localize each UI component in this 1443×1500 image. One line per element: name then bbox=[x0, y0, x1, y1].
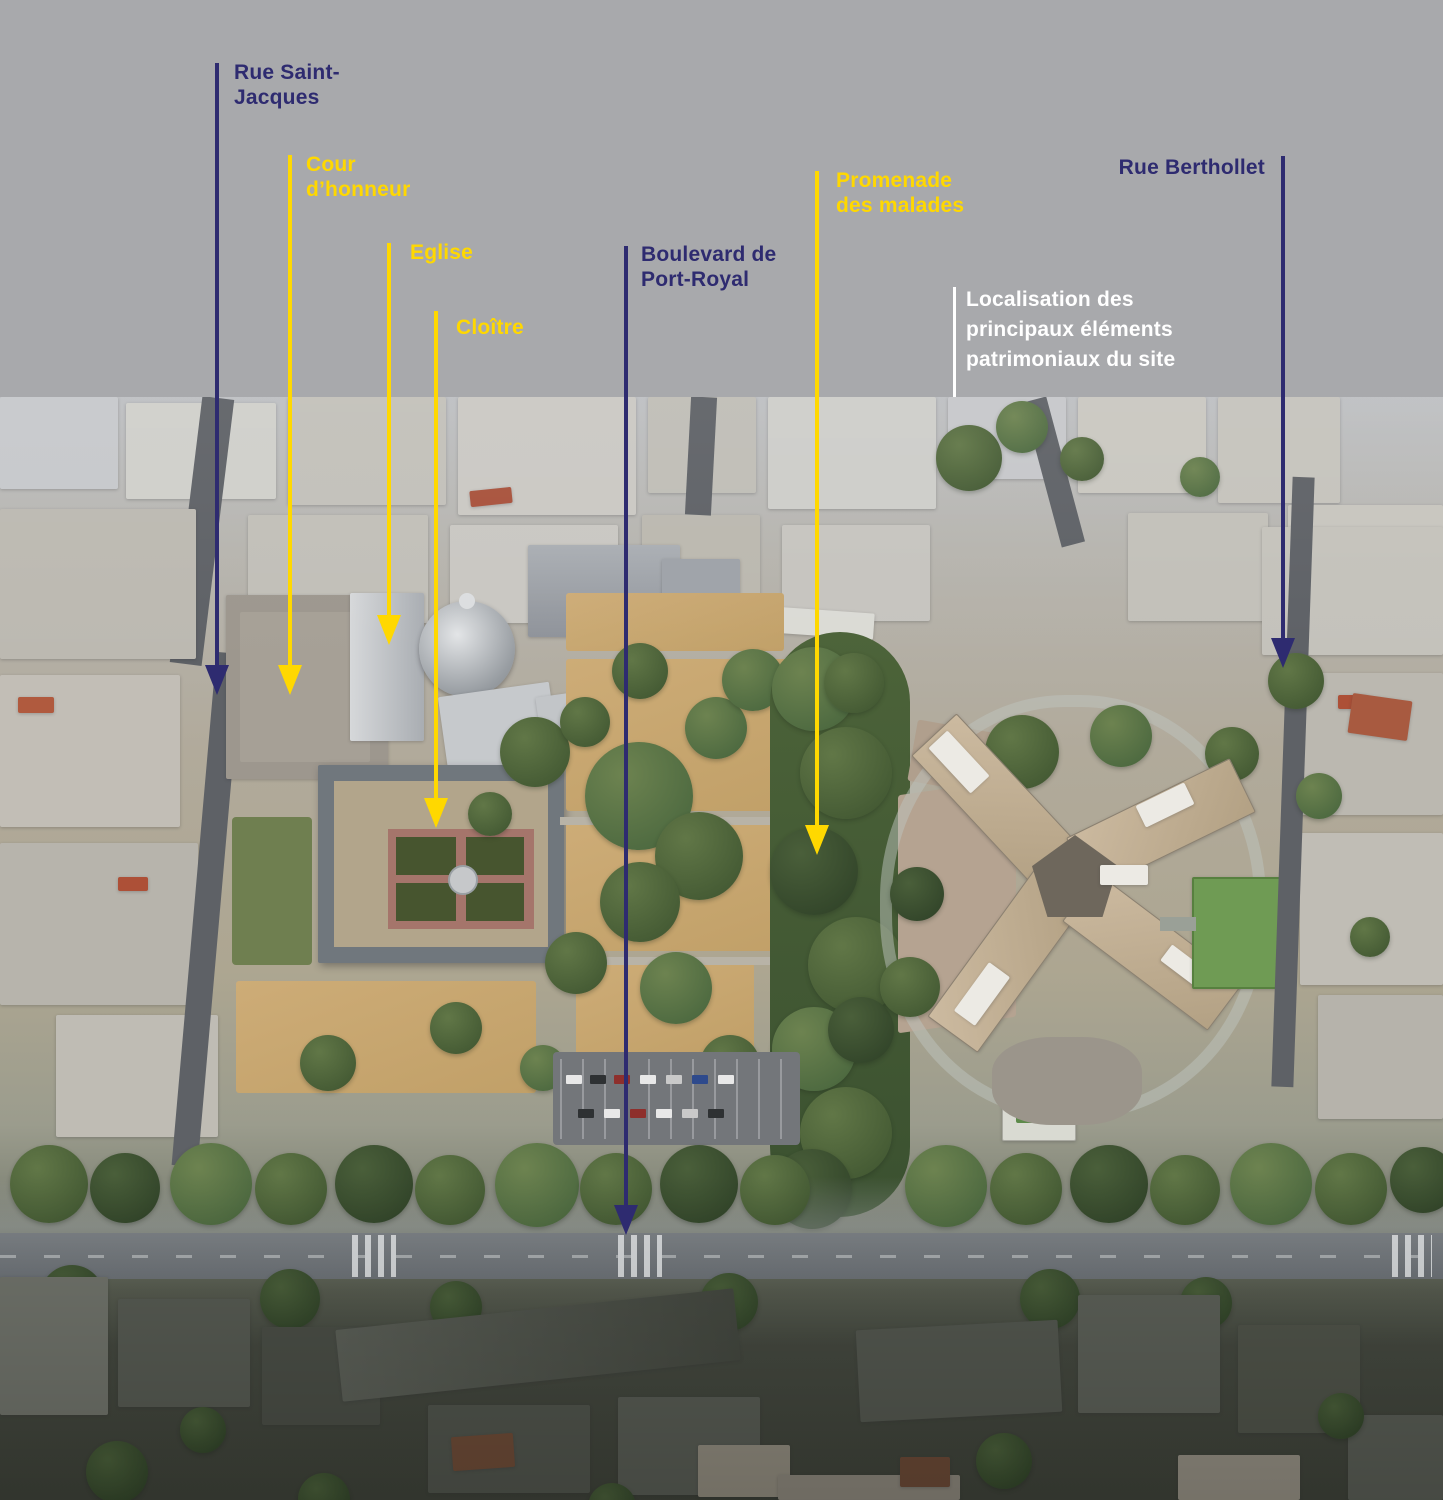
arrow-down-icon bbox=[614, 1205, 638, 1235]
annotation-label: Rue Berthollet bbox=[1119, 155, 1265, 180]
annotation-label: Rue Saint- Jacques bbox=[234, 60, 340, 110]
arrow-down-icon bbox=[424, 798, 448, 828]
arrow-line bbox=[215, 63, 219, 665]
arrow-line bbox=[288, 155, 292, 665]
arrow-line bbox=[624, 246, 628, 1205]
arrow-down-icon bbox=[1271, 638, 1295, 668]
arrow-down-icon bbox=[278, 665, 302, 695]
annotation-label: Boulevard de Port-Royal bbox=[641, 242, 776, 292]
arrow-line bbox=[434, 311, 438, 798]
annotation-label: Cloître bbox=[456, 315, 524, 340]
arrow-line bbox=[1281, 156, 1285, 638]
arrow-down-icon bbox=[377, 615, 401, 645]
annotation-label: Eglise bbox=[410, 240, 473, 265]
legend-title: Localisation des principaux éléments pat… bbox=[966, 285, 1175, 375]
annotated-aerial-view: Rue Saint- Jacques Cour d’honneur Eglise… bbox=[0, 0, 1443, 1500]
annotation-label: Cour d’honneur bbox=[306, 152, 410, 202]
arrow-line bbox=[815, 171, 819, 825]
arrow-down-icon bbox=[205, 665, 229, 695]
annotation-layer: Rue Saint- Jacques Cour d’honneur Eglise… bbox=[0, 0, 1443, 1500]
arrow-down-icon bbox=[805, 825, 829, 855]
arrow-line bbox=[387, 243, 391, 615]
annotation-label: Promenade des malades bbox=[836, 168, 964, 218]
legend-tick-line bbox=[953, 287, 956, 397]
